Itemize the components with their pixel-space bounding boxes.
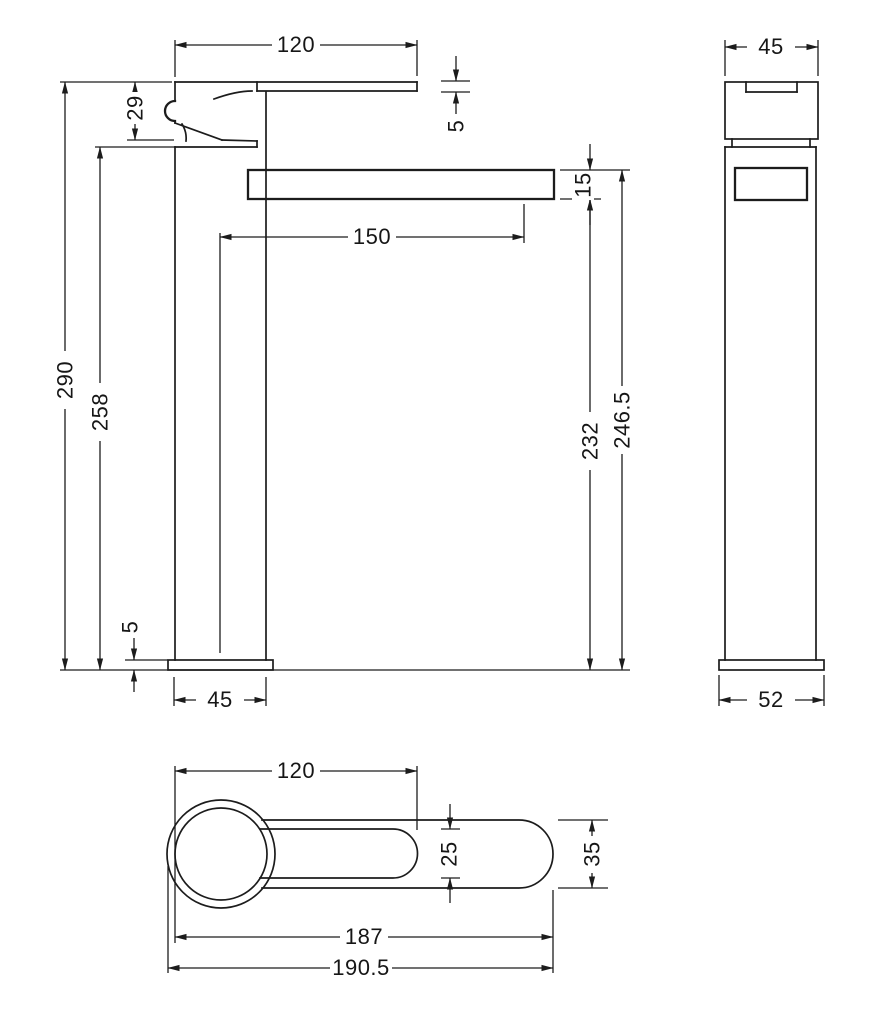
front-dimension-labels: 120 5 29 290 258 150 15 232 246.5 5 45 [53, 32, 635, 712]
drawing-page: 120 5 29 290 258 150 15 232 246.5 5 45 [0, 0, 888, 1024]
dim-top-lever-width: 25 [437, 841, 462, 866]
top-body-circle [175, 808, 267, 900]
front-spout [248, 170, 554, 199]
dim-front-lever-length: 120 [277, 32, 315, 57]
dim-front-lever-thickness: 5 [444, 120, 469, 133]
side-spout-section [735, 168, 807, 200]
front-base-plate [168, 660, 273, 670]
side-view: 45 52 [719, 34, 824, 712]
top-view: 120 25 35 187 190.5 [167, 758, 608, 980]
dim-top-body-to-spout-end: 187 [345, 924, 383, 949]
front-extension-lines [60, 40, 630, 706]
dim-front-handle-height: 29 [123, 95, 148, 120]
side-body [725, 147, 816, 660]
dim-side-base-depth: 52 [758, 687, 783, 712]
side-base-plate [719, 660, 824, 670]
handle-pivot-arc [165, 101, 175, 121]
side-dimension-labels: 45 52 [747, 34, 795, 712]
top-base-ring-outer [167, 800, 275, 908]
side-dimension-lines [719, 47, 824, 700]
dim-front-spout-reach: 150 [353, 224, 391, 249]
dim-front-body-width: 45 [207, 687, 232, 712]
dim-front-spout-bottom-to-base: 232 [578, 422, 603, 460]
dim-front-spout-thickness: 15 [571, 172, 596, 197]
top-lever-outline [260, 829, 417, 878]
front-body [175, 92, 266, 660]
dim-top-lever-length: 120 [277, 758, 315, 783]
side-handle [725, 82, 818, 147]
tap-technical-drawing: 120 5 29 290 258 150 15 232 246.5 5 45 [0, 0, 888, 1024]
dim-top-spout-width: 35 [580, 841, 605, 866]
side-extension-lines [719, 40, 824, 706]
front-view: 120 5 29 290 258 150 15 232 246.5 5 45 [53, 32, 635, 712]
dim-side-body-depth: 45 [758, 34, 783, 59]
front-lever-handle [165, 82, 417, 147]
dim-front-overall-height: 290 [53, 361, 78, 399]
top-dimension-labels: 120 25 35 187 190.5 [272, 758, 605, 980]
dim-front-spout-top-to-base: 246.5 [610, 391, 635, 449]
dim-front-base-thickness: 5 [118, 621, 143, 634]
dim-top-overall-length: 190.5 [332, 955, 390, 980]
handle-top-curve [214, 91, 252, 99]
front-dimension-lines [65, 45, 622, 700]
dim-front-body-height: 258 [88, 393, 113, 431]
